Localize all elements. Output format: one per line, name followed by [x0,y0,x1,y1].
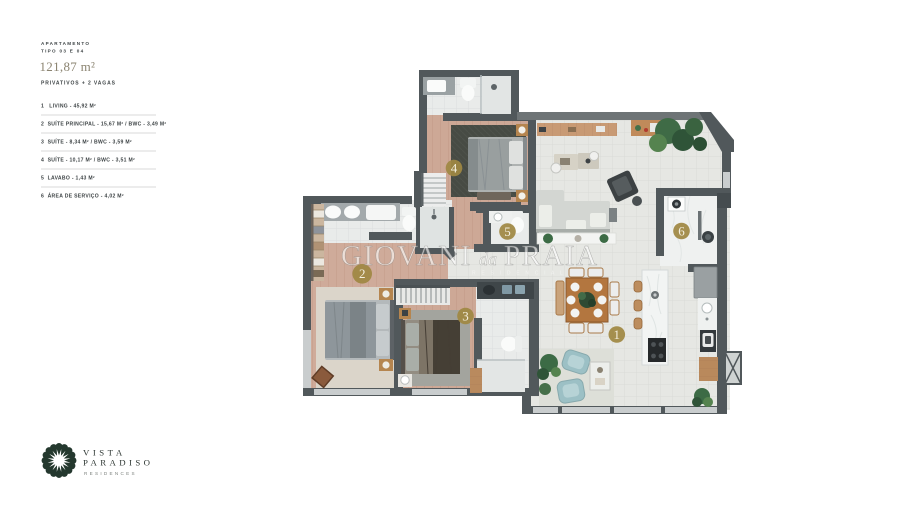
svg-text:5 LAVABO - 1,43 M²: 5 LAVABO - 1,43 M² [41,176,95,182]
svg-text:RESIDENCES: RESIDENCES [84,471,137,476]
svg-text:6: 6 [678,223,685,238]
svg-text:4 SUÍTE - 10,17 M² / BWC - 3,: 4 SUÍTE - 10,17 M² / BWC - 3,51 M² [41,156,135,164]
svg-text:PARADISO: PARADISO [83,458,153,468]
svg-text:da: da [479,249,497,269]
svg-text:R E S I D E N C I A L: R E S I D E N C I A L [472,271,565,277]
svg-text:6 ÁREA DE SERVIÇO - 4,02 M²: 6 ÁREA DE SERVIÇO - 4,02 M² [41,193,124,200]
svg-text:1: 1 [614,327,621,342]
svg-text:PRAIA: PRAIA [504,240,599,272]
svg-text:3 SUÍTE - 8,34 M² / BWC - 3,5: 3 SUÍTE - 8,34 M² / BWC - 3,59 M² [41,138,132,146]
svg-text:1 LIVING - 45,92 M²: 1 LIVING - 45,92 M² [41,104,96,110]
svg-text:4: 4 [451,160,458,175]
svg-text:PRIVATIVOS + 2 VAGAS: PRIVATIVOS + 2 VAGAS [41,81,116,87]
svg-text:VISTA: VISTA [83,448,126,458]
svg-text:5: 5 [504,224,511,239]
svg-text:APARTAMENTO: APARTAMENTO [41,41,90,46]
svg-text:TIPO 03 E 04: TIPO 03 E 04 [41,49,84,54]
svg-text:121,87 m²: 121,87 m² [40,59,96,74]
svg-text:GIOVANI: GIOVANI [341,240,472,272]
svg-text:2 SUÍTE PRINCIPAL - 15,67 M²: 2 SUÍTE PRINCIPAL - 15,67 M² / BWC - 3,4… [41,120,166,128]
svg-text:3: 3 [462,308,469,323]
